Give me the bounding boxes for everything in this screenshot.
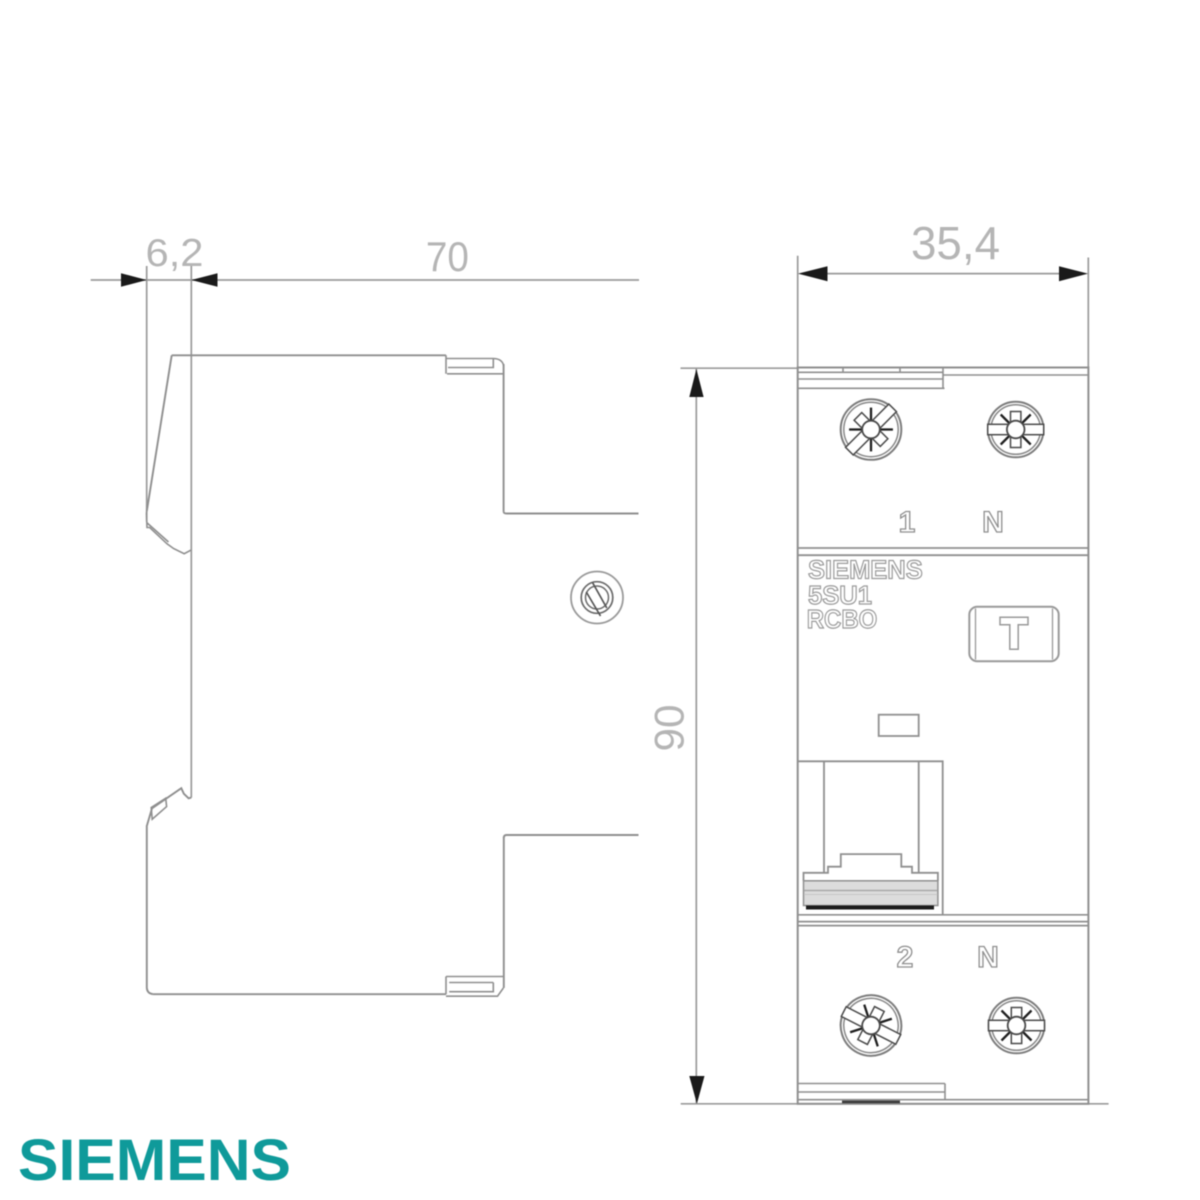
svg-text:1: 1: [899, 506, 916, 539]
svg-text:N: N: [982, 506, 1004, 539]
svg-text:70: 70: [426, 233, 469, 280]
svg-text:RCBO: RCBO: [807, 604, 878, 634]
svg-text:6,2: 6,2: [146, 232, 204, 275]
svg-text:90: 90: [646, 705, 693, 752]
svg-text:35,4: 35,4: [911, 217, 1000, 269]
svg-text:N: N: [977, 941, 999, 974]
svg-text:SIEMENS: SIEMENS: [18, 1128, 291, 1193]
svg-text:2: 2: [897, 941, 914, 974]
